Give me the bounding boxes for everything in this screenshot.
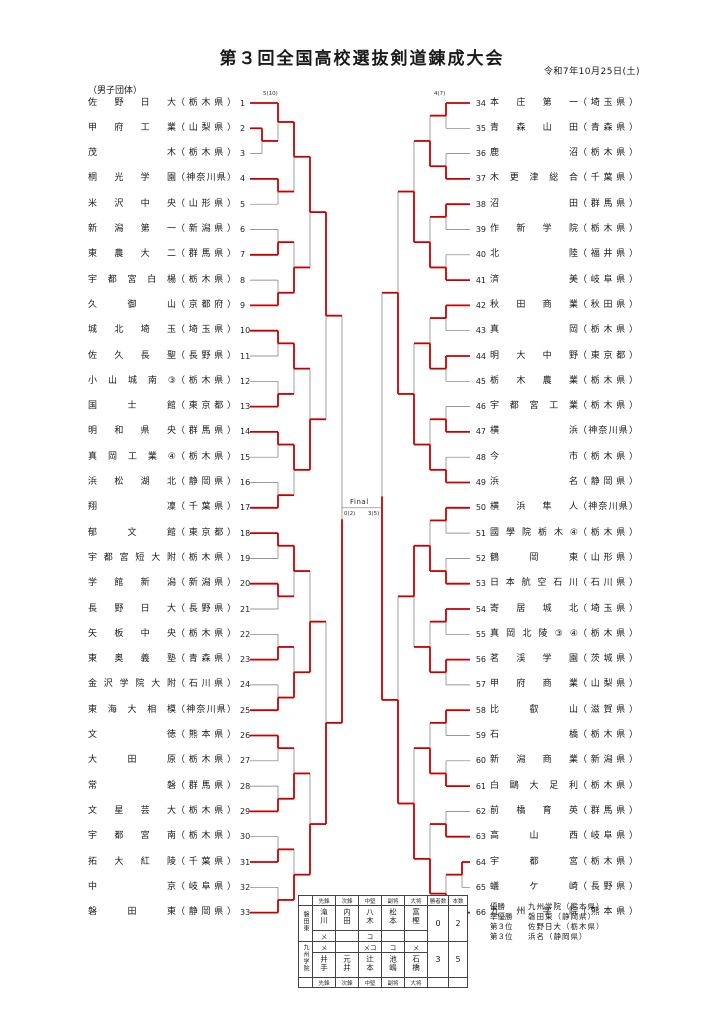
position-header: 大将 bbox=[405, 896, 428, 906]
team1-player: 滝川 bbox=[313, 906, 336, 931]
result-pref: （熊本県） bbox=[562, 902, 605, 912]
corner-cell bbox=[299, 978, 313, 988]
team2-player: 井手 bbox=[313, 953, 336, 978]
team1-player: 内田 bbox=[336, 906, 359, 931]
team1-ippon: メ bbox=[313, 931, 336, 942]
team2-player: 石橋 bbox=[405, 953, 428, 978]
result-row: 優勝 九州学院 （熊本県） bbox=[490, 902, 605, 912]
result-pref: （静岡県） bbox=[545, 932, 588, 942]
position-footer: 大将 bbox=[405, 978, 428, 988]
team1-points: 2 bbox=[449, 906, 468, 942]
position-footer: 先鋒 bbox=[313, 978, 336, 988]
team2-ippon: メコ bbox=[359, 942, 382, 953]
result-row: 準優勝 磐田東 （静岡県） bbox=[490, 912, 605, 922]
final-score-left: 0(2) bbox=[344, 511, 355, 517]
corner-cell bbox=[299, 896, 313, 906]
result-team: 九州学院 bbox=[528, 902, 562, 912]
match-score-label: 5(10) bbox=[263, 91, 278, 97]
final-score-right: 3(5) bbox=[368, 511, 379, 517]
blank-cell bbox=[449, 978, 468, 988]
result-rank: 優勝 bbox=[490, 902, 528, 912]
team2-label: 九州学院 bbox=[299, 942, 313, 978]
points-header: 本数 bbox=[449, 896, 468, 906]
team1-label: 磐田東 bbox=[299, 906, 313, 942]
team1-ippon bbox=[336, 931, 359, 942]
position-header: 副将 bbox=[382, 896, 405, 906]
bracket-lines bbox=[0, 0, 724, 1024]
team2-ippon: メ bbox=[405, 942, 428, 953]
team2-ippon: コ bbox=[382, 942, 405, 953]
team2-wins: 3 bbox=[428, 942, 449, 978]
position-header: 中堅 bbox=[359, 896, 382, 906]
result-team: 佐野日大 bbox=[528, 922, 562, 932]
result-team: 浜名 bbox=[528, 932, 545, 942]
team1-ippon bbox=[405, 931, 428, 942]
team1-player: 八木 bbox=[359, 906, 382, 931]
blank-cell bbox=[428, 978, 449, 988]
position-footer: 次鋒 bbox=[336, 978, 359, 988]
result-rank: 準優勝 bbox=[490, 912, 528, 922]
team2-ippon bbox=[336, 942, 359, 953]
team2-ippon: メ bbox=[313, 942, 336, 953]
position-footer: 副将 bbox=[382, 978, 405, 988]
result-rank: 第３位 bbox=[490, 922, 528, 932]
result-rank: 第３位 bbox=[490, 932, 528, 942]
result-row: 第３位 浜名 （静岡県） bbox=[490, 932, 605, 942]
team2-player: 辻本 bbox=[359, 953, 382, 978]
position-header: 先鋒 bbox=[313, 896, 336, 906]
team1-player: 富樫 bbox=[405, 906, 428, 931]
result-pref: （静岡県） bbox=[554, 912, 597, 922]
position-footer: 中堅 bbox=[359, 978, 382, 988]
team2-player: 元井 bbox=[336, 953, 359, 978]
position-header: 次鋒 bbox=[336, 896, 359, 906]
team2-player: 池嶋 bbox=[382, 953, 405, 978]
team1-wins: 0 bbox=[428, 906, 449, 942]
results-box: 優勝 九州学院 （熊本県） 準優勝 磐田東 （静岡県） 第３位 佐野日大 （栃木… bbox=[490, 902, 605, 942]
final-label: Final bbox=[350, 498, 369, 506]
team1-ippon: コ bbox=[359, 931, 382, 942]
team2-points: 5 bbox=[449, 942, 468, 978]
final-match-table: 先鋒次鋒中堅副将大将勝者数本数磐田東滝川内田八木松本富樫02メコ九州学院メメココ… bbox=[298, 895, 468, 988]
team1-player: 松本 bbox=[382, 906, 405, 931]
match-score-label: 4(7) bbox=[434, 91, 445, 97]
wins-header: 勝者数 bbox=[428, 896, 449, 906]
team1-ippon bbox=[382, 931, 405, 942]
result-row: 第３位 佐野日大 （栃木県） bbox=[490, 922, 605, 932]
result-team: 磐田東 bbox=[528, 912, 554, 922]
result-pref: （栃木県） bbox=[562, 922, 605, 932]
